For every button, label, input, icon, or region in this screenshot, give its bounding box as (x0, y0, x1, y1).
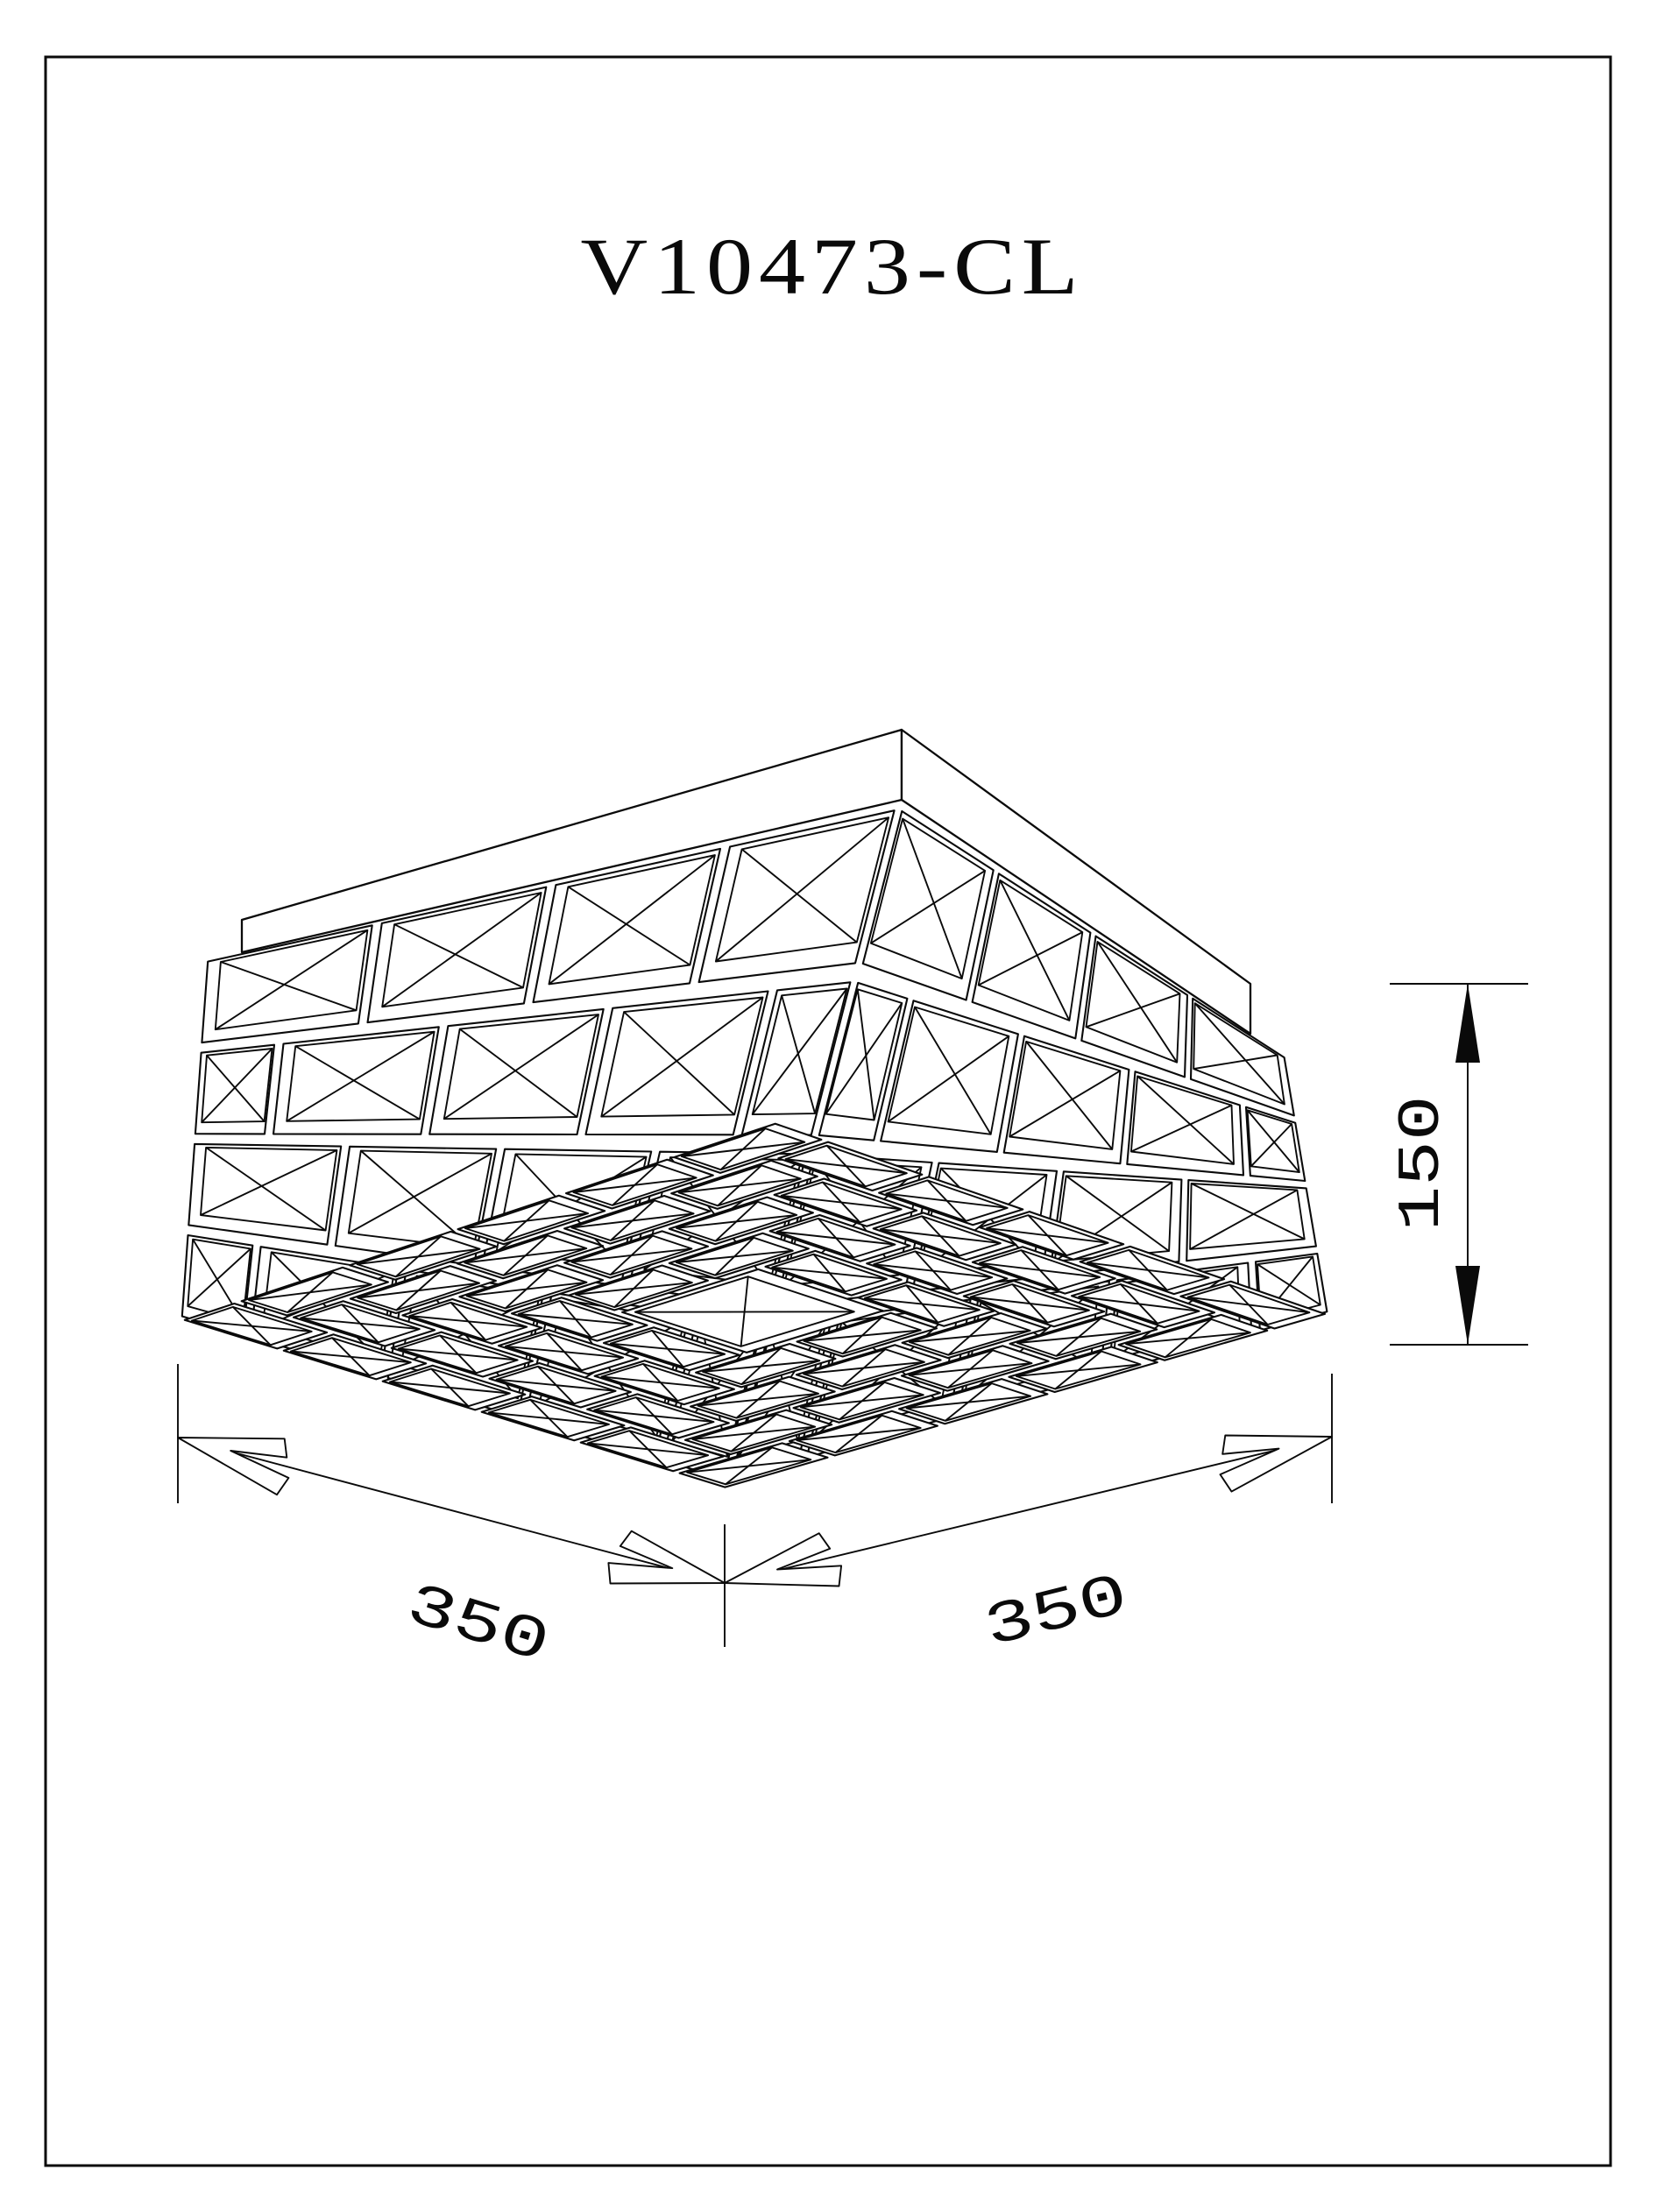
height-dimension-label: 150 (1389, 1096, 1456, 1232)
technical-drawing-canvas: V10473-CL 150 350 350 (0, 0, 1664, 2212)
drawing-sheet: V10473-CL 150 350 350 (0, 0, 1664, 2212)
arrow-up-icon (1455, 984, 1480, 1063)
left-width-dimension-label: 350 (399, 1572, 556, 1678)
right-width-dimension-label: 350 (978, 1563, 1135, 1664)
page-title: V10473-CL (581, 222, 1085, 311)
arrow-left-icon (178, 1438, 288, 1495)
crystal-brick (1186, 1180, 1316, 1261)
arrow-right-icon (1221, 1436, 1333, 1492)
arrow-down-icon (1455, 1266, 1480, 1345)
ceiling-lamp-figure (182, 730, 1328, 1488)
